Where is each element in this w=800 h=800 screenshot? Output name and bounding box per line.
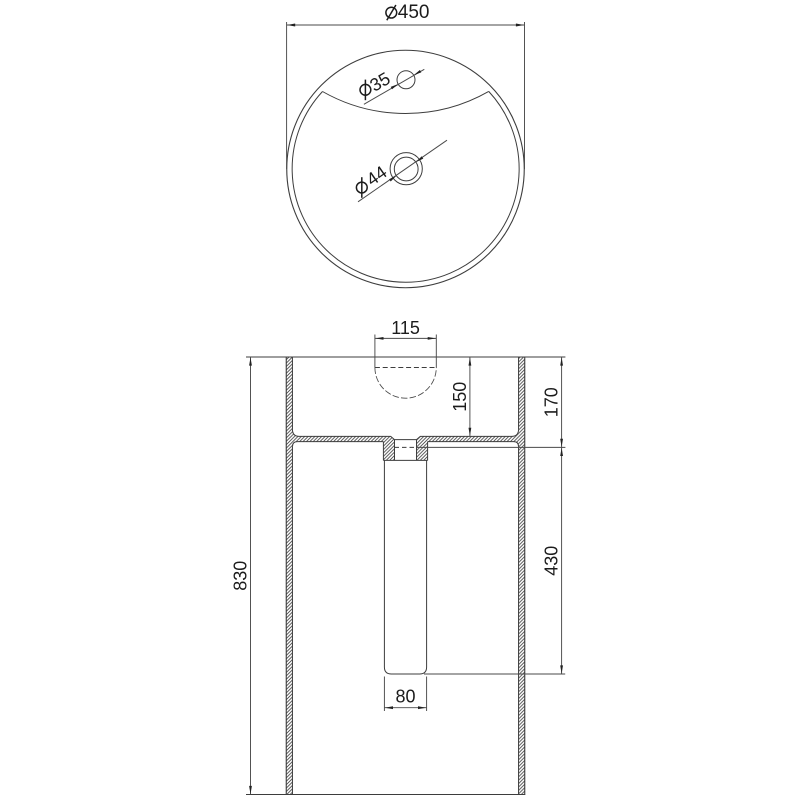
svg-text:115: 115 [391, 318, 420, 338]
svg-text:80: 80 [395, 687, 415, 707]
svg-text:170: 170 [542, 387, 562, 417]
svg-text:150: 150 [450, 382, 470, 412]
svg-text:450: 450 [398, 2, 430, 23]
svg-text:430: 430 [542, 546, 562, 576]
svg-text:830: 830 [230, 561, 250, 591]
